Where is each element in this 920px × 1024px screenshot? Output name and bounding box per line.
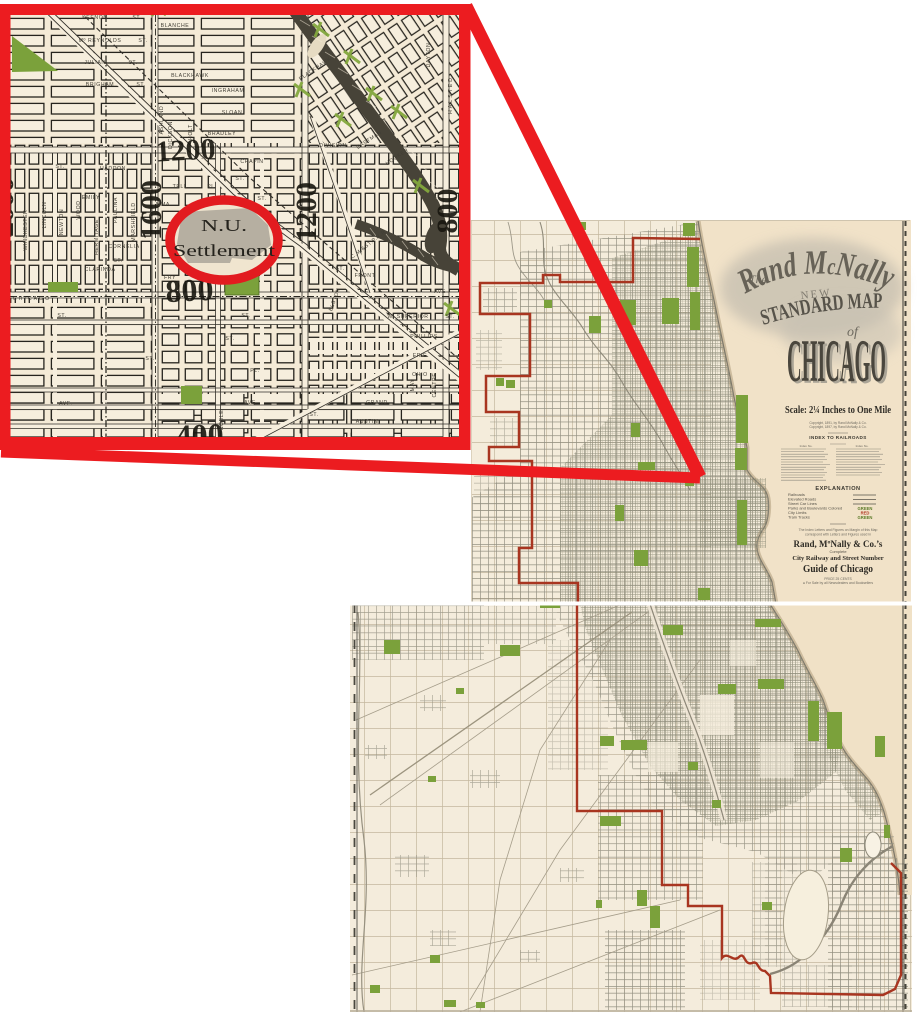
svg-text:INGRAHAM: INGRAHAM	[212, 88, 245, 94]
svg-text:HERMITAGE: HERMITAGE	[94, 219, 100, 255]
svg-text:Guide of Chicago: Guide of Chicago	[803, 564, 873, 575]
svg-text:CHICAGO: CHICAGO	[13, 296, 51, 302]
svg-text:BRADLEY: BRADLEY	[208, 131, 236, 137]
svg-text:correspond with Letters and Fi: correspond with Letters and Figures used…	[805, 533, 871, 537]
svg-text:ST.: ST.	[335, 266, 344, 272]
svg-text:MARSHFIELD: MARSHFIELD	[131, 202, 137, 241]
svg-text:SLOAN: SLOAN	[222, 110, 243, 116]
svg-text:FRONT: FRONT	[355, 273, 376, 279]
svg-text:OHIO: OHIO	[412, 372, 428, 378]
svg-text:EXPLANATION: EXPLANATION	[815, 486, 860, 492]
svg-text:PL.: PL.	[207, 184, 217, 190]
svg-text:HALSTED: HALSTED	[448, 76, 454, 114]
svg-text:Copyright, 1897, by Rand McNal: Copyright, 1897, by Rand McNally & Co.	[809, 425, 866, 429]
svg-text:MMA: MMA	[156, 202, 170, 208]
svg-text:PHILLIPS: PHILLIPS	[410, 334, 438, 340]
svg-text:HADDON: HADDON	[100, 166, 126, 172]
svg-text:Settlement: Settlement	[173, 241, 275, 260]
svg-text:1600: 1600	[135, 180, 168, 240]
svg-text:ST.: ST.	[57, 313, 66, 319]
svg-text:ST.: ST.	[138, 38, 147, 44]
svg-text:Index No.: Index No.	[800, 444, 813, 448]
svg-text:ST.: ST.	[145, 356, 154, 362]
svg-text:ST.: ST.	[136, 82, 145, 88]
svg-text:DIVISION: DIVISION	[319, 143, 347, 149]
svg-text:TELL: TELL	[173, 184, 188, 190]
svg-text:DICKSON: DICKSON	[168, 121, 174, 149]
svg-text:ST.: ST.	[235, 176, 244, 182]
svg-text:Index No.: Index No.	[856, 444, 869, 448]
svg-text:FRY: FRY	[164, 275, 176, 281]
svg-text:PL.: PL.	[250, 368, 260, 374]
svg-text:WINCHESTER: WINCHESTER	[23, 210, 29, 251]
svg-text:1200: 1200	[290, 182, 323, 242]
svg-text:AVE: AVE	[434, 289, 446, 295]
svg-text:LINCOLN: LINCOLN	[42, 202, 48, 229]
svg-text:City Railway and Street Number: City Railway and Street Number	[792, 555, 883, 562]
svg-text:CHICAGO: CHICAGO	[787, 328, 886, 394]
svg-text:Train Tracks: Train Tracks	[788, 515, 810, 520]
svg-text:BLACKHAWK: BLACKHAWK	[171, 73, 209, 79]
svg-text:GRAND: GRAND	[366, 400, 388, 406]
svg-text:ST.: ST.	[241, 313, 250, 319]
svg-text:ST.: ST.	[445, 314, 454, 320]
svg-text:ST.: ST.	[113, 258, 122, 264]
svg-text:ST.: ST.	[132, 15, 141, 21]
svg-text:ASHLAND: ASHLAND	[159, 106, 165, 135]
svg-text:Complete: Complete	[829, 549, 847, 554]
svg-text:KEENON: KEENON	[82, 15, 108, 21]
svg-text:HOLT: HOLT	[188, 124, 194, 140]
svg-text:CLARINDA: CLARINDA	[84, 267, 115, 273]
svg-text:ERIE: ERIE	[413, 353, 428, 359]
svg-text:Mº REYNOLDS: Mº REYNOLDS	[79, 38, 122, 44]
svg-text:JULIAN: JULIAN	[84, 60, 105, 66]
svg-text:ST.: ST.	[257, 196, 266, 202]
svg-text:DAYTON: DAYTON	[426, 43, 432, 68]
svg-text:INDEX TO RAILROADS: INDEX TO RAILROADS	[809, 435, 866, 440]
svg-text:PAULINA: PAULINA	[113, 197, 119, 223]
svg-text:W. SUPERIOR: W. SUPERIOR	[387, 314, 428, 320]
svg-text:WOOD: WOOD	[76, 200, 82, 219]
svg-text:EMILY: EMILY	[82, 195, 100, 201]
svg-text:The Index Letters and Figures: The Index Letters and Figures on Margin …	[799, 528, 878, 532]
svg-text:CORNELIA: CORNELIA	[108, 244, 139, 250]
svg-text:NEWTON: NEWTON	[59, 209, 65, 236]
svg-text:MAY: MAY	[410, 379, 416, 392]
svg-text:Rand, MºNally & Co.’s: Rand, MºNally & Co.’s	[794, 539, 883, 549]
svg-text:ST.: ST.	[225, 336, 234, 342]
svg-text:CHAPIN: CHAPIN	[240, 159, 263, 165]
svg-text:AVE.: AVE.	[59, 401, 73, 407]
svg-text:NOBLE: NOBLE	[219, 410, 225, 431]
svg-text:● For Sale by all Newsdealers: ● For Sale by all Newsdealers and Bookse…	[803, 581, 874, 585]
svg-text:Scale: 2¼ Inches to One Mile: Scale: 2¼ Inches to One Mile	[785, 404, 891, 416]
svg-text:AUSTIN: AUSTIN	[356, 419, 379, 425]
svg-text:AVE: AVE	[244, 400, 256, 406]
svg-text:1200: 1200	[155, 132, 217, 168]
svg-text:N.U.: N.U.	[201, 216, 247, 235]
svg-text:ST.: ST.	[309, 412, 318, 418]
svg-text:GREEN: GREEN	[858, 515, 873, 520]
svg-text:ST.: ST.	[55, 164, 64, 170]
svg-text:BLANCHE: BLANCHE	[161, 23, 190, 29]
svg-text:ST.: ST.	[128, 60, 137, 66]
svg-text:CENTRE: CENTRE	[432, 373, 438, 398]
svg-text:BRIGHAM: BRIGHAM	[86, 82, 114, 88]
